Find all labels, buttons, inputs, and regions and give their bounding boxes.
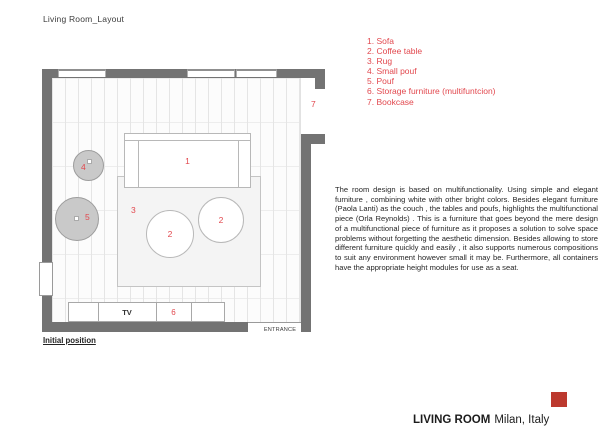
small-pouf: 4 — [73, 150, 104, 181]
window-3 — [236, 69, 277, 77]
legend-item: 1. Sofa — [367, 36, 496, 46]
rug-number: 3 — [131, 206, 136, 215]
legend-item: 4. Small pouf — [367, 66, 496, 76]
project-name: LIVING ROOM — [413, 414, 490, 426]
window-1 — [58, 69, 106, 77]
sofa: 1 — [124, 133, 251, 188]
wall-top-right-corner — [315, 69, 325, 89]
coffee-table-1: 2 — [146, 210, 194, 258]
bookcase-number: 7 — [311, 100, 316, 109]
legend-item: 6. Storage furniture (multifuntcion) — [367, 86, 496, 96]
legend-item: 5. Pouf — [367, 76, 496, 86]
window-2 — [187, 69, 235, 77]
initial-position-caption: Initial position — [43, 336, 96, 345]
coffee-table-1-number: 2 — [168, 230, 173, 239]
tv-label: TV — [98, 303, 156, 321]
sofa-number: 1 — [125, 134, 250, 187]
coffee-table-2-number: 2 — [219, 216, 224, 225]
legend-item: 7. Bookcase — [367, 97, 496, 107]
coffee-table-2: 2 — [198, 197, 244, 243]
project-location: Milan, Italy — [494, 414, 549, 426]
storage-bench: TV 6 — [68, 302, 225, 322]
wall-right — [301, 134, 311, 332]
pouf-marker — [75, 217, 78, 220]
pouf-number: 5 — [85, 213, 90, 222]
wall-bottom — [42, 322, 248, 332]
legend-list: 1. Sofa 2. Coffee table 3. Rug 4. Small … — [367, 36, 496, 107]
layout-sheet: Living Room_Layout 3 1 2 2 4 5 — [0, 0, 610, 448]
entrance-threshold-line — [248, 322, 301, 323]
project-title: LIVING ROOMMilan, Italy — [413, 414, 549, 426]
brand-mark-square — [551, 392, 567, 407]
storage-number: 6 — [156, 303, 191, 321]
radiator — [39, 262, 53, 296]
small-pouf-marker — [88, 160, 91, 163]
legend-item: 3. Rug — [367, 56, 496, 66]
legend-item: 2. Coffee table — [367, 46, 496, 56]
description-paragraph: The room design is based on multifunctio… — [335, 185, 598, 272]
bench-divider — [191, 303, 192, 321]
small-pouf-number: 4 — [81, 163, 86, 172]
page-title: Living Room_Layout — [43, 14, 124, 24]
entrance-label: ENTRANCE — [256, 327, 304, 333]
pouf: 5 — [55, 197, 99, 241]
